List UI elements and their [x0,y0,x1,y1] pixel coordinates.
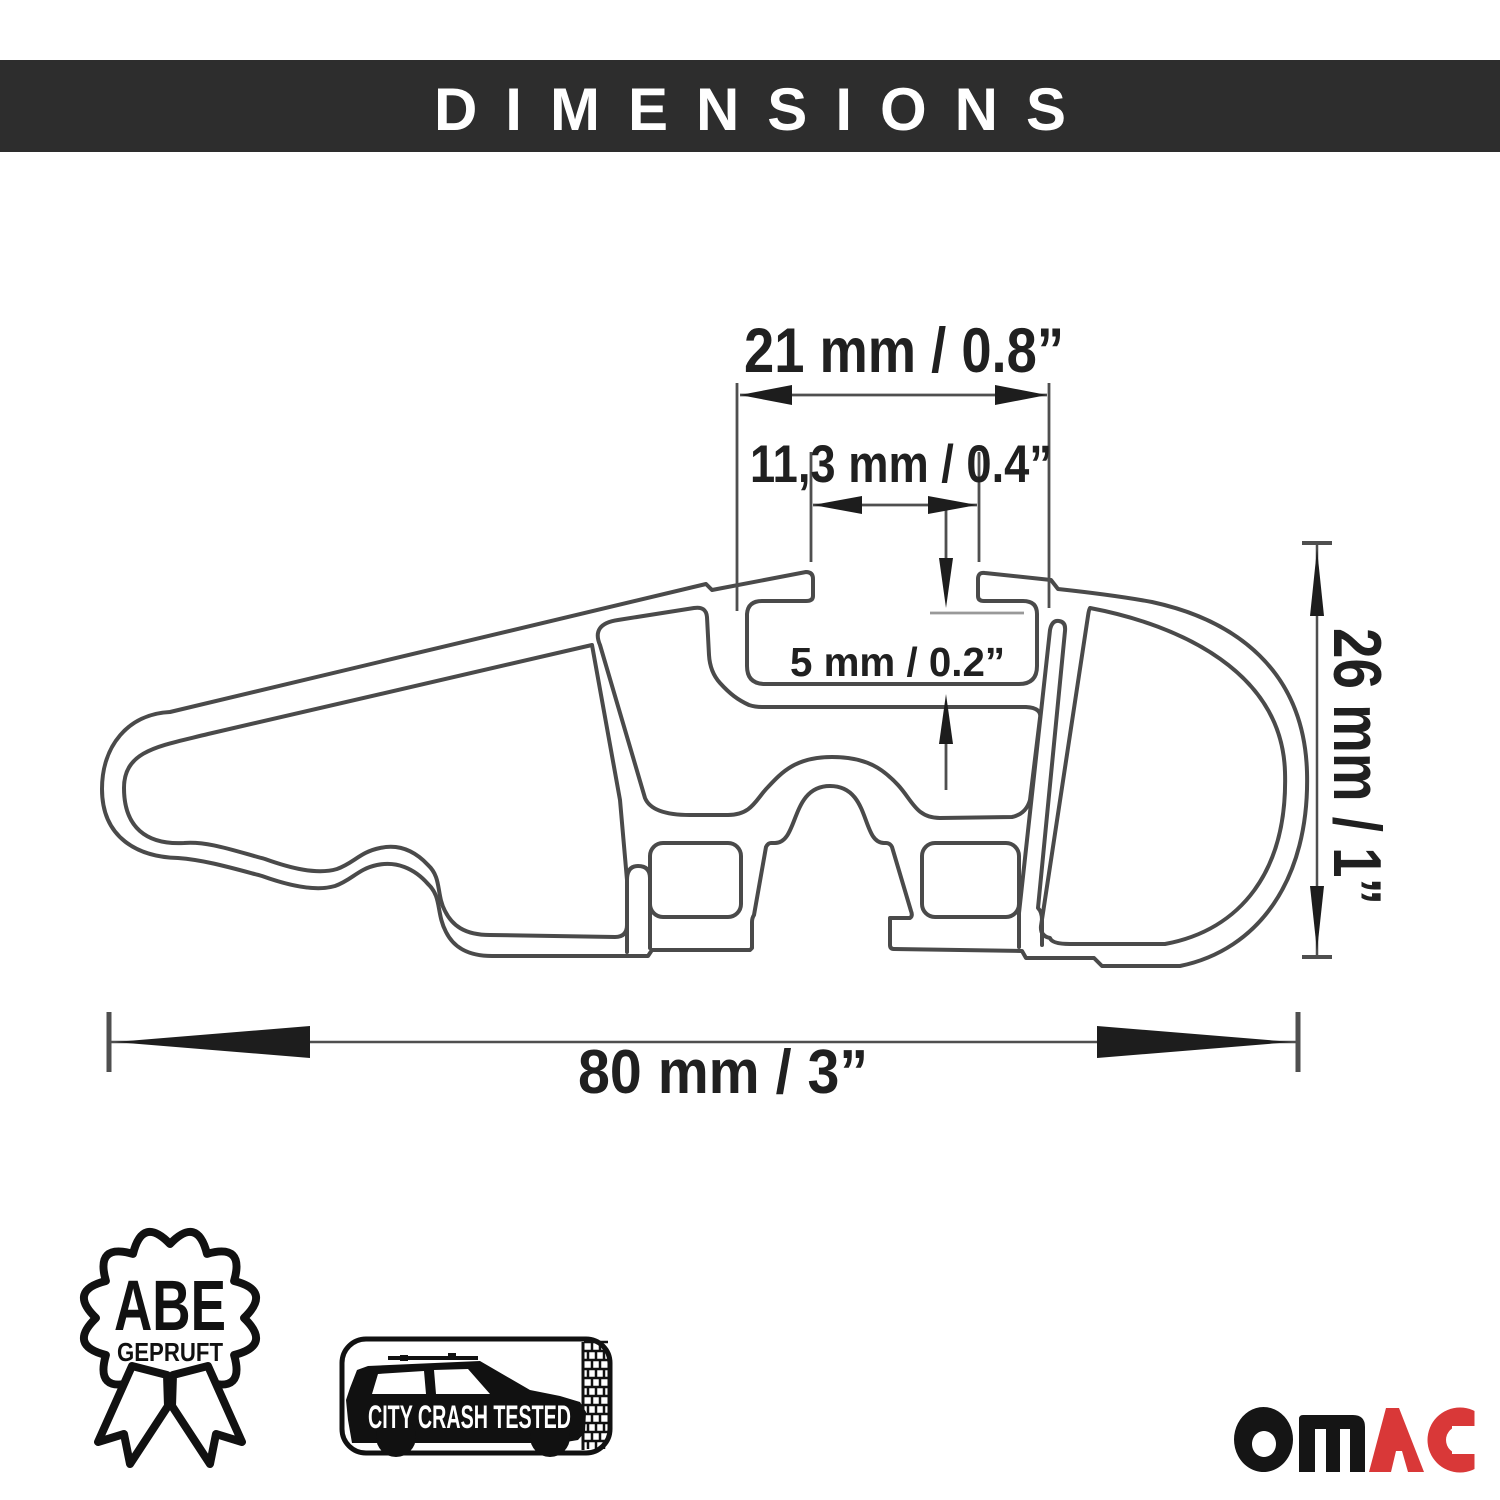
svg-text:80 mm / 3”: 80 mm / 3” [578,1038,868,1107]
svg-text:26 mm / 1”: 26 mm / 1” [1319,628,1395,905]
svg-text:5 mm / 0.2”: 5 mm / 0.2” [790,639,1005,685]
svg-text:21 mm / 0.8”: 21 mm / 0.8” [744,316,1064,386]
svg-text:GEPRUFT: GEPRUFT [117,1337,223,1367]
svg-text:11,3 mm / 0.4”: 11,3 mm / 0.4” [750,435,1052,494]
svg-text:CITY CRASH TESTED: CITY CRASH TESTED [368,1399,571,1435]
svg-text:ABE: ABE [114,1267,226,1346]
